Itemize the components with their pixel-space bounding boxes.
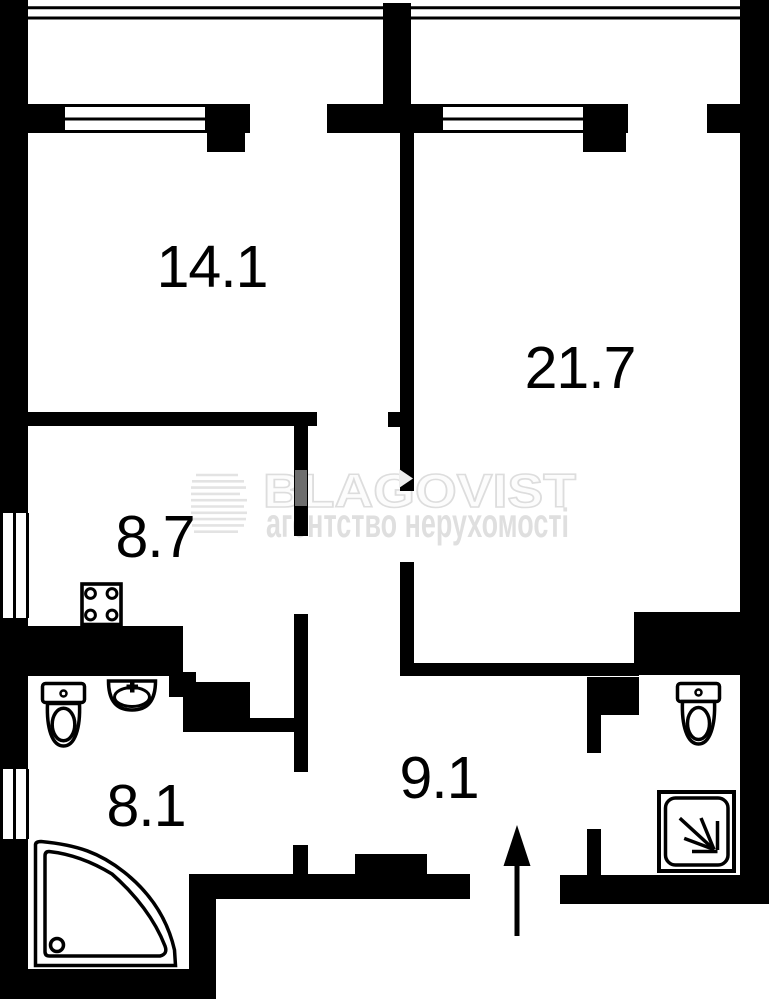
svg-text:9.1: 9.1 (399, 745, 478, 811)
svg-text:агентство нерухомості: агентство нерухомості (266, 500, 569, 546)
svg-text:8.7: 8.7 (115, 504, 194, 570)
svg-text:14.1: 14.1 (157, 234, 268, 300)
svg-text:21.7: 21.7 (525, 335, 636, 401)
svg-text:8.1: 8.1 (106, 773, 185, 839)
